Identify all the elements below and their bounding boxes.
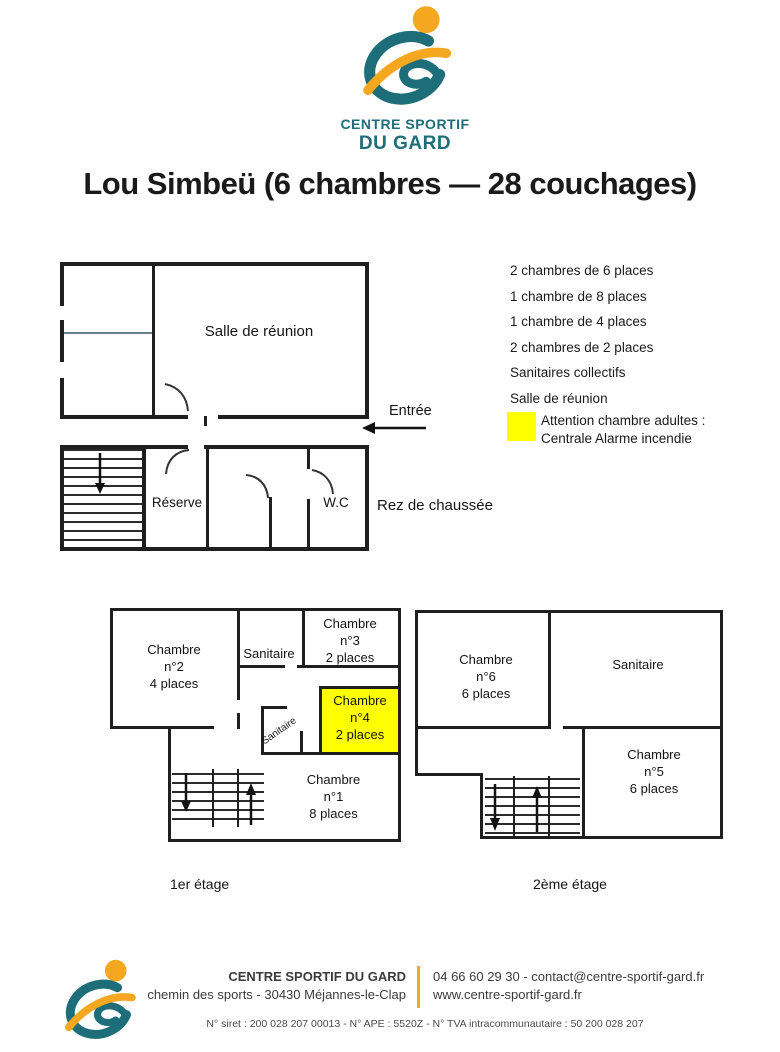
footer-legal: N° siret : 200 028 207 00013 - N° APE : … (70, 1018, 780, 1030)
door-arc-icon (163, 382, 190, 412)
wall (307, 449, 310, 469)
wall (261, 706, 287, 709)
sanitaire-label: Sanitaire (563, 656, 713, 673)
wall (319, 686, 401, 689)
legend-item: 2 chambres de 2 places (510, 335, 653, 361)
wall (110, 608, 113, 729)
wall (480, 773, 483, 839)
second-floor-caption: 2ème étage (533, 876, 607, 892)
door-arc-icon (311, 469, 335, 495)
legend-item: 2 chambres de 6 places (510, 258, 653, 284)
footer-contact: 04 66 60 29 30 - contact@centre-sportif-… (433, 968, 763, 1004)
page-title: Lou Simbeü (6 chambres — 28 couchages) (0, 166, 780, 202)
wall (300, 752, 401, 755)
chambre3-label: Chambre n°3 2 places (304, 615, 396, 666)
stairs-down-arrow-icon (180, 773, 192, 813)
wall (415, 726, 548, 729)
footer-address: chemin des sports - 30430 Méjannes-le-Cl… (96, 986, 406, 1004)
footer-divider (417, 966, 420, 1008)
sanitaire-label: Sanitaire (238, 645, 300, 662)
warning-highlight-swatch (507, 412, 536, 441)
first-floor-plan: Chambre n°2 4 places Sanitaire Chambre n… (108, 603, 408, 853)
legend: 2 chambres de 6 places 1 chambre de 8 pl… (510, 258, 653, 411)
wall (261, 752, 303, 755)
wall (415, 610, 723, 613)
stairs-up-arrow-icon (245, 781, 257, 825)
wc-label: W.C (309, 495, 363, 510)
footer-website: www.centre-sportif-gard.fr (433, 986, 763, 1004)
rez-de-chaussee-label: Rez de chaussée (377, 497, 493, 514)
legend-item: Sanitaires collectifs (510, 360, 653, 386)
stairs-down-arrow-icon (489, 784, 501, 832)
warning-line2: Centrale Alarme incendie (541, 430, 705, 448)
logo-line1: CENTRE SPORTIF (320, 117, 490, 133)
footer-name: CENTRE SPORTIF DU GARD (96, 968, 406, 986)
logo-wordmark: CENTRE SPORTIF DU GARD (320, 117, 490, 154)
logo (350, 4, 462, 116)
legend-item: Salle de réunion (510, 386, 653, 412)
wall (720, 610, 723, 839)
wall (415, 773, 483, 776)
wall (563, 726, 723, 729)
logo-line2: DU GARD (320, 133, 490, 154)
stairs-down-arrow-icon (94, 453, 106, 495)
wall (237, 713, 240, 729)
door-arc-icon (245, 473, 269, 499)
wall (110, 608, 401, 611)
stair-rail (548, 776, 550, 836)
footer-identity: CENTRE SPORTIF DU GARD chemin des sports… (96, 968, 406, 1004)
entree-arrow-icon (362, 421, 428, 435)
chambre5-label: Chambre n°5 6 places (593, 746, 715, 797)
wall (168, 726, 171, 842)
wall (64, 332, 152, 334)
chambre1-label: Chambre n°1 8 places (271, 771, 396, 822)
second-floor-plan: Chambre n°6 6 places Sanitaire Chambre n… (413, 606, 728, 846)
salle-de-reunion-label: Salle de réunion (159, 323, 359, 340)
warning-note: Attention chambre adultes : Centrale Ala… (507, 412, 705, 448)
legend-item: 1 chambre de 8 places (510, 284, 653, 310)
wall (110, 726, 214, 729)
ground-floor-lower-block: Réserve W.C (60, 445, 369, 551)
legend-item: 1 chambre de 4 places (510, 309, 653, 335)
ground-floor-upper-block: Salle de réunion (60, 262, 369, 419)
reserve-label: Réserve (146, 495, 208, 510)
wall (480, 836, 723, 839)
stair-rail (212, 769, 214, 827)
stairs-up-arrow-icon (531, 784, 543, 832)
door-opening (188, 445, 204, 449)
wall-opening (60, 306, 64, 320)
stair-rail (237, 769, 239, 827)
wall (269, 497, 272, 547)
chambre2-label: Chambre n°2 4 places (116, 641, 232, 692)
warning-line1: Attention chambre adultes : (541, 412, 705, 430)
wall (582, 726, 585, 839)
wall (415, 610, 418, 776)
wall (152, 266, 155, 415)
chambre4-label: Chambre n°4 2 places (322, 692, 398, 743)
document-page: CENTRE SPORTIF DU GARD Lou Simbeü (6 cha… (0, 0, 780, 1052)
door-arc-icon (164, 449, 190, 475)
wall (168, 839, 401, 842)
footer-phone-email: 04 66 60 29 30 - contact@centre-sportif-… (433, 968, 763, 986)
wall (237, 665, 285, 668)
logo-swoosh-icon (350, 4, 462, 116)
wall (398, 608, 401, 842)
wall (261, 706, 264, 755)
door-opening (188, 415, 218, 419)
wall (548, 610, 551, 729)
wall (204, 416, 207, 426)
stair-rail (513, 776, 515, 836)
entree-label: Entrée (389, 403, 432, 419)
sanitaire-small-label: Sanitaire (260, 706, 312, 747)
wall (206, 449, 209, 547)
first-floor-caption: 1er étage (170, 876, 229, 892)
chambre6-label: Chambre n°6 6 places (431, 651, 541, 702)
wall-opening (60, 362, 64, 378)
